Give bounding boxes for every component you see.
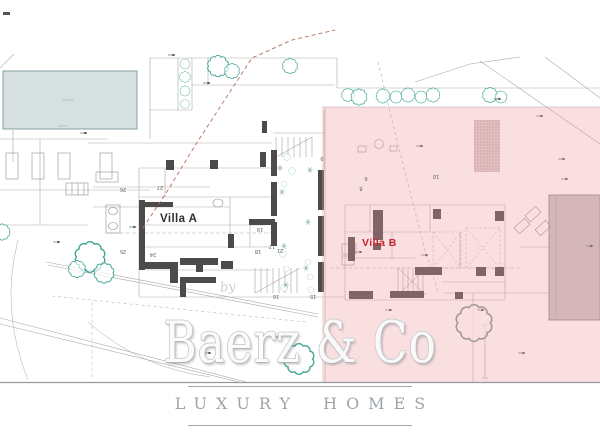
boundary-dashed-line xyxy=(143,30,335,228)
watermark-rule-top xyxy=(188,386,412,387)
room-number: 6 xyxy=(360,175,372,181)
by-mark: by xyxy=(219,279,236,296)
room-number: 25 xyxy=(117,248,129,254)
room-number: 16 xyxy=(270,293,282,299)
room-number: 27 xyxy=(154,184,166,190)
villa-b-label: Villa B xyxy=(362,237,397,249)
room-number: 21 xyxy=(274,247,286,253)
room-number: 10 xyxy=(430,173,442,179)
room-number: 8 xyxy=(355,185,367,191)
room-number: 9 xyxy=(316,155,328,161)
floor-plan-drawing xyxy=(0,0,600,446)
floor-plan-page: Villa A Villa B by 27 26 25 24 19 18 17 … xyxy=(0,0,600,446)
room-number: 19 xyxy=(254,226,266,232)
room-number: 18 xyxy=(252,248,264,254)
watermark-rule-bottom xyxy=(188,425,412,426)
room-number: 26 xyxy=(117,186,129,192)
room-number: 24 xyxy=(147,251,159,257)
room-number: 15 xyxy=(307,293,319,299)
villa-a-label: Villa A xyxy=(160,213,197,225)
